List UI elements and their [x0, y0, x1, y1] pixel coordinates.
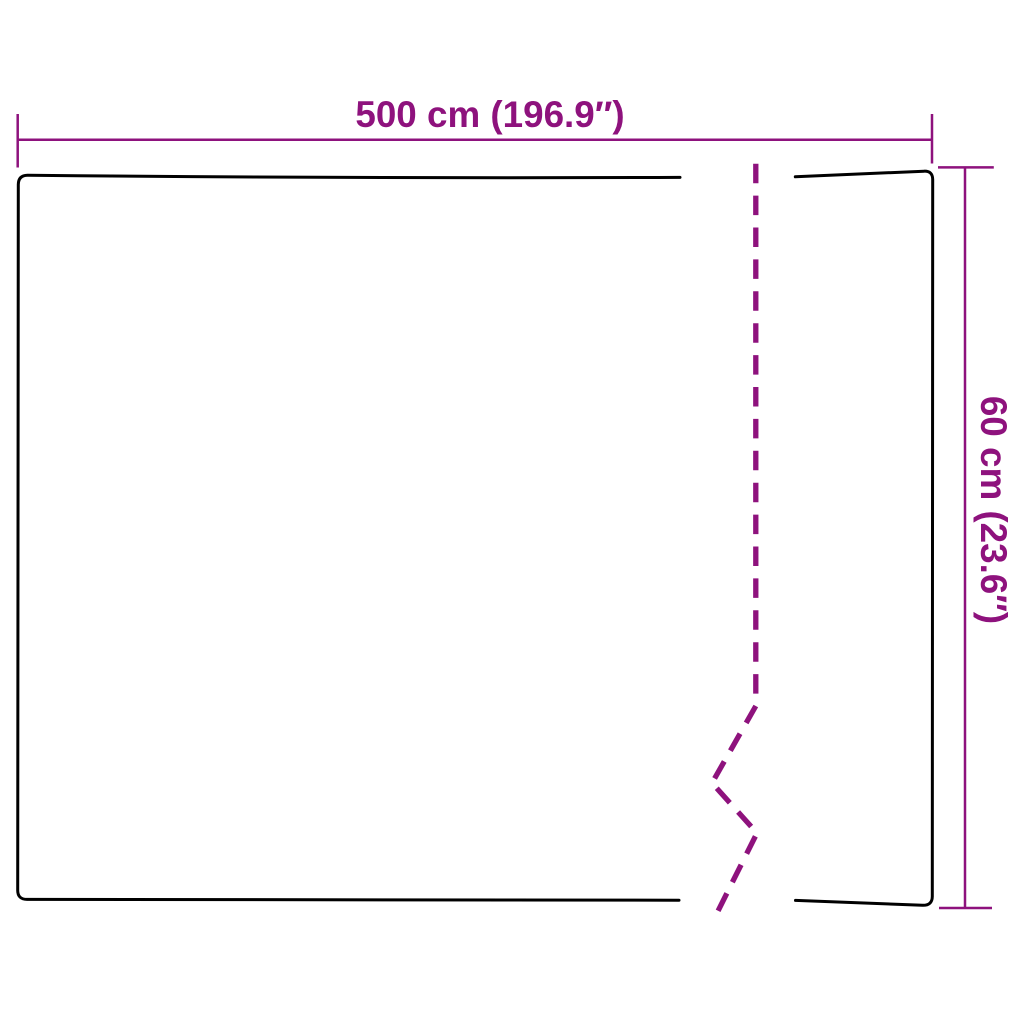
svg-text:500 cm (196.9″): 500 cm (196.9″)	[355, 94, 624, 135]
svg-text:60 cm (23.6″): 60 cm (23.6″)	[973, 396, 1014, 624]
